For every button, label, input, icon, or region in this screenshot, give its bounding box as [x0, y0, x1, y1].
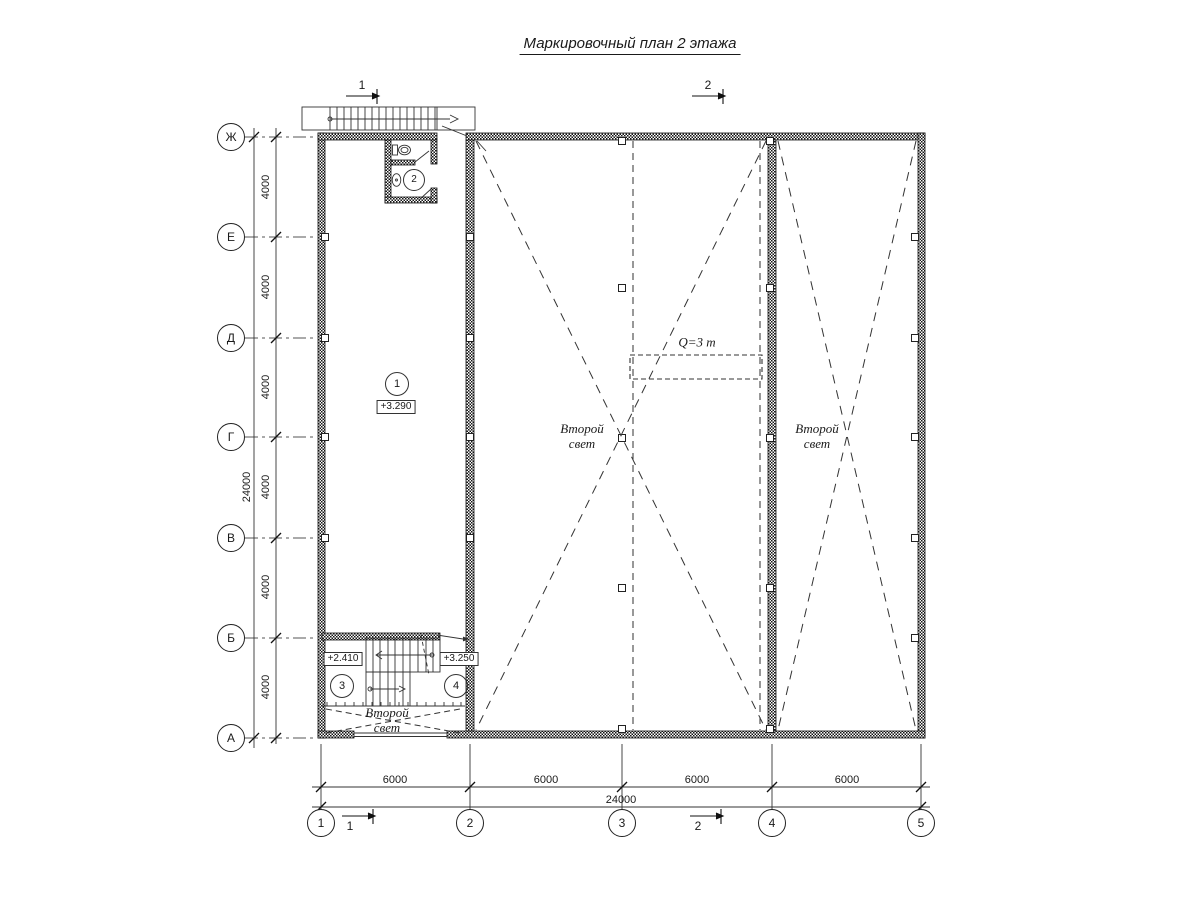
section-mark-2-top: 2: [705, 78, 712, 92]
void-cross-middle-bay: [476, 141, 766, 730]
grid-bubble-row-d: Д: [217, 324, 245, 352]
grid-bubble-row-zh: Ж: [217, 123, 245, 151]
grid-bubble-row-b: Б: [217, 624, 245, 652]
section-mark-2-bottom: 2: [695, 819, 702, 833]
dim-bottom-1: 6000: [383, 774, 407, 786]
dimension-ticks: [249, 132, 926, 812]
second-light-right-line1: Второй: [795, 421, 839, 436]
second-light-bottom-line2: свет: [365, 720, 409, 735]
dim-bottom-4: 6000: [835, 774, 859, 786]
crane-rails: [633, 141, 760, 730]
elevation-room-1: +3.290: [377, 400, 416, 414]
dim-left-4: 4000: [260, 475, 272, 499]
section-mark-1-top: 1: [359, 78, 366, 92]
elevation-room-4: +3.250: [440, 652, 479, 666]
second-light-label-middle: Второй свет: [560, 421, 604, 451]
second-light-label-bottom: Второй свет: [365, 705, 409, 735]
dim-left-5: 4000: [260, 575, 272, 599]
dim-left-3: 4000: [260, 375, 272, 399]
grid-bubble-col-1: 1: [307, 809, 335, 837]
second-light-middle-line2: свет: [560, 436, 604, 451]
dim-left-2: 4000: [260, 275, 272, 299]
crane-bridge: [630, 355, 762, 379]
grid-bubble-row-e: Е: [217, 223, 245, 251]
grid-bubble-col-3: 3: [608, 809, 636, 837]
crane-capacity-label: Q=3 т: [678, 335, 715, 350]
grid-bubble-col-5: 5: [907, 809, 935, 837]
dim-bottom-2: 6000: [534, 774, 558, 786]
second-light-label-right: Второй свет: [795, 421, 839, 451]
second-light-bottom-line1: Второй: [365, 705, 409, 720]
elevation-room-3: +2.410: [324, 652, 363, 666]
grid-bubble-row-v: В: [217, 524, 245, 552]
floor-plan-sheet: Маркировочный план 2 этажа Ж Е Д Г В Б А…: [0, 0, 1200, 900]
dim-left-6: 4000: [260, 675, 272, 699]
drawing-title: Маркировочный план 2 этажа: [520, 35, 741, 55]
page-title-wrap: Маркировочный план 2 этажа: [520, 35, 741, 55]
dim-left-1: 4000: [260, 175, 272, 199]
section-mark-1-bottom: 1: [347, 819, 354, 833]
dim-left-total: 24000: [241, 472, 253, 503]
grid-bubble-row-g: Г: [217, 423, 245, 451]
dim-bottom-3: 6000: [685, 774, 709, 786]
stair-exterior: [302, 107, 475, 130]
room-circle-1: 1: [385, 372, 409, 396]
axis-lines: [245, 137, 317, 738]
grid-bubble-col-4: 4: [758, 809, 786, 837]
second-light-right-line2: свет: [795, 436, 839, 451]
room-circle-4: 4: [444, 674, 468, 698]
room-circle-2: 2: [403, 169, 425, 191]
room-circle-3: 3: [330, 674, 354, 698]
grid-bubble-row-a: А: [217, 724, 245, 752]
dimension-lines: [254, 128, 930, 810]
grid-bubble-col-2: 2: [456, 809, 484, 837]
dim-bottom-total: 24000: [606, 794, 637, 806]
second-light-middle-line1: Второй: [560, 421, 604, 436]
